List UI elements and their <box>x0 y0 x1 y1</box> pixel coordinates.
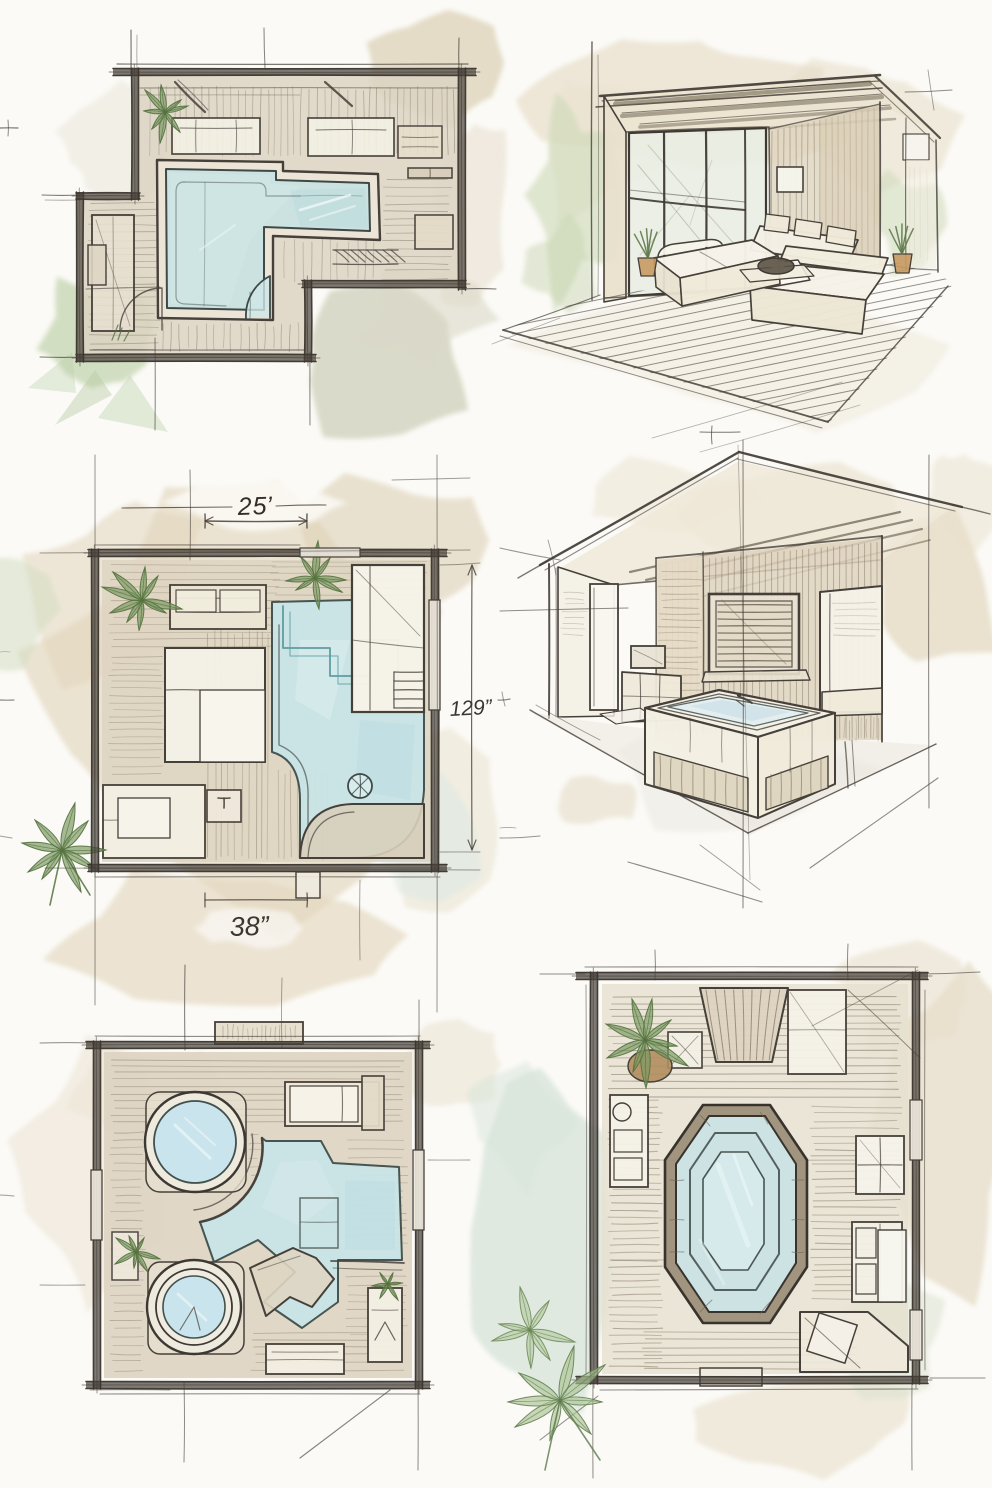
svg-text:129”: 129” <box>449 696 493 721</box>
svg-text:38”: 38” <box>229 911 270 942</box>
svg-text:25’: 25’ <box>236 492 273 521</box>
